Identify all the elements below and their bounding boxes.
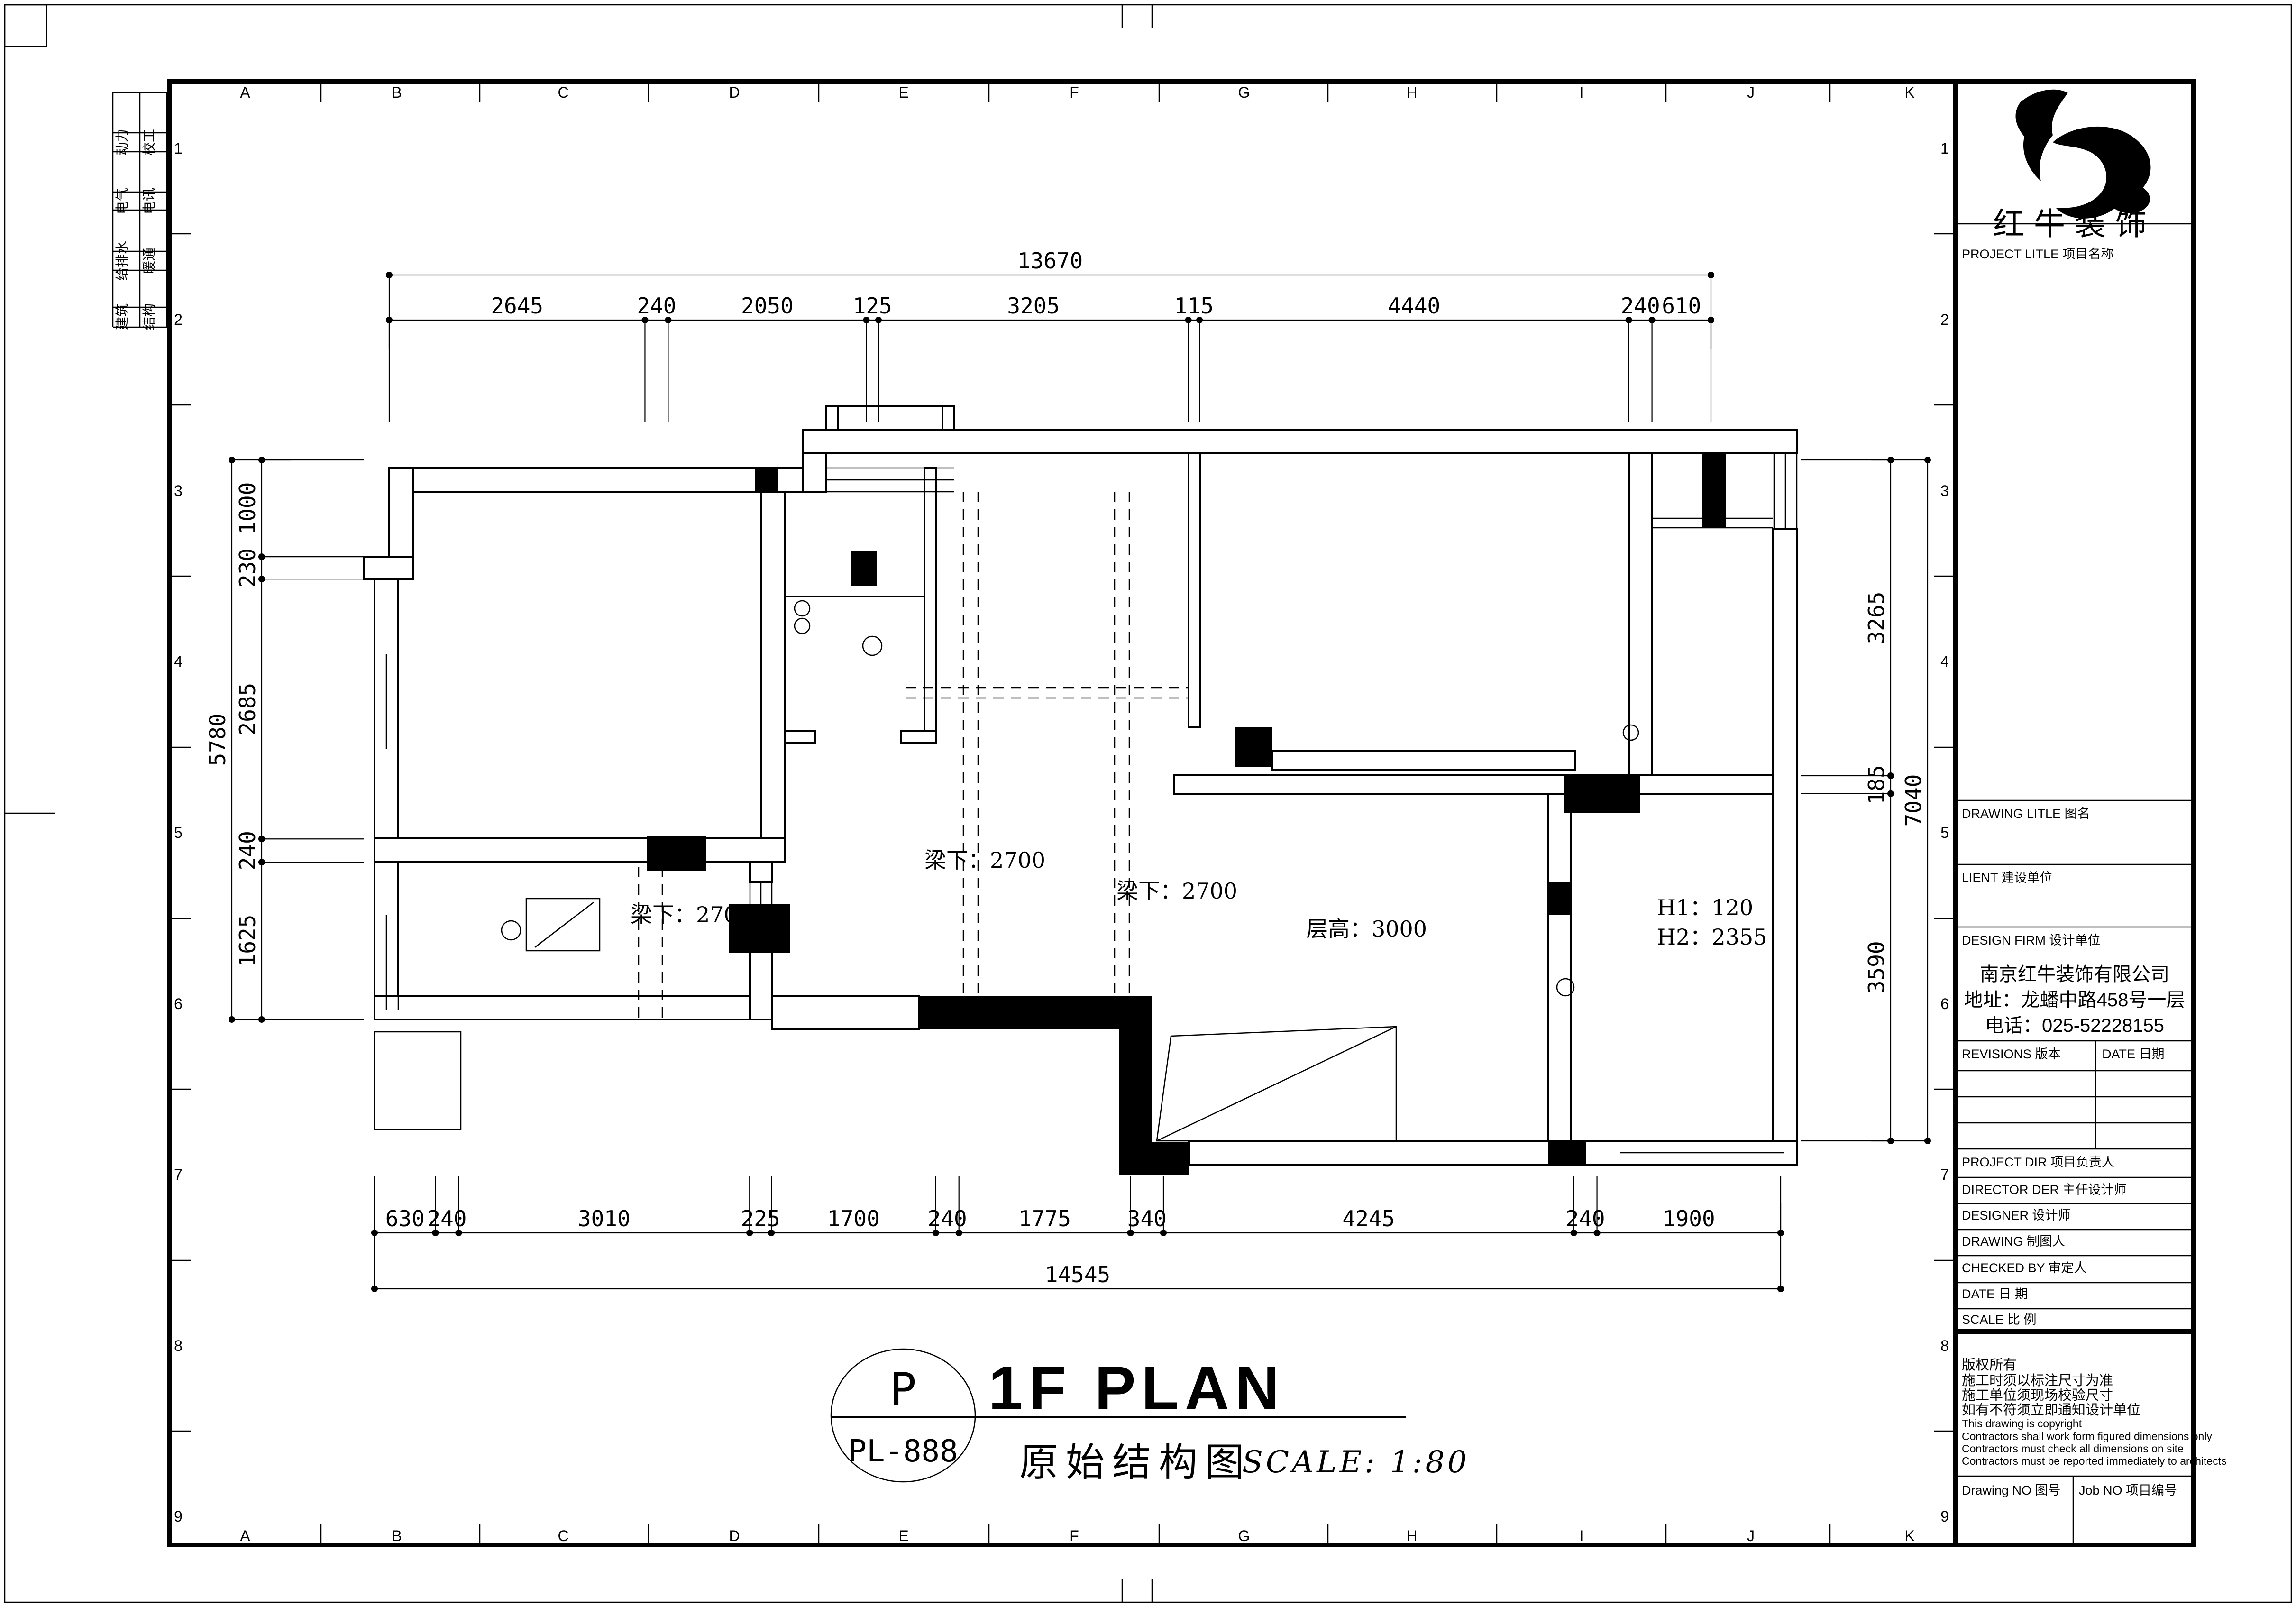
grid-number-right: 6 <box>1940 995 1949 1012</box>
drawing-sheet: AABBCCDDEEFFGGHHIIJJKK112233445566778899… <box>0 0 2296 1607</box>
discipline-label: 结构 <box>142 303 156 330</box>
dim-text: 225 <box>741 1206 780 1231</box>
copyright-line-3: 如有不符须立即通知设计单位 <box>1962 1402 2140 1418</box>
grid-number-left: 7 <box>174 1166 183 1183</box>
checked-by-label: CHECKED BY 审定人 <box>1962 1261 2087 1275</box>
dim-text: 13670 <box>1017 248 1083 274</box>
company-phone: 电话：025-52228155 <box>1985 1015 2164 1036</box>
copyright-line-0: 版权所有 <box>1962 1357 2017 1373</box>
dim-text: 125 <box>853 293 892 319</box>
dim-text: 1900 <box>1663 1206 1715 1231</box>
window-right-bay <box>1774 453 1797 528</box>
dim-text: 3205 <box>1007 293 1060 319</box>
dim-text: 4245 <box>1342 1206 1395 1231</box>
stair-flue-shape <box>1157 1027 1396 1141</box>
grid-letter-bottom: B <box>392 1527 402 1544</box>
dim-text: 5780 <box>205 714 230 766</box>
drawing-by-label: DRAWING 制图人 <box>1962 1234 2065 1249</box>
dim-text: 4440 <box>1388 293 1440 319</box>
grid-letter-bottom: K <box>1904 1527 1914 1544</box>
floor-height-note: 层高：3000 <box>1306 916 1427 942</box>
brand-name: 红牛装饰 <box>1993 206 2156 242</box>
h1-note: H1：120 <box>1657 895 1753 920</box>
dim-text: 2645 <box>491 293 543 319</box>
dim-text: 1000 <box>235 482 260 535</box>
discipline-label: 校工 <box>142 129 156 156</box>
revisions-label: REVISIONS 版本 <box>1962 1047 2061 1061</box>
entry-porch <box>375 1032 461 1129</box>
grid-number-left: 3 <box>174 482 183 499</box>
h2-note: H2：2355 <box>1657 924 1767 950</box>
grid-letter-bottom: A <box>240 1527 250 1544</box>
beam-note-3: 梁下：2700 <box>631 902 751 927</box>
dimension-lines: 2645240205012532051154440240610136706302… <box>205 248 1931 1292</box>
grid-letter-bottom: H <box>1406 1527 1417 1544</box>
dim-text: 240 <box>1566 1206 1605 1231</box>
discipline-label: 电讯 <box>142 188 156 214</box>
drawing-code: PL-888 <box>848 1434 958 1469</box>
dim-text: 2685 <box>235 683 260 735</box>
dim-text: 1775 <box>1018 1206 1071 1231</box>
copyright-line-5: Contractors shall work form figured dime… <box>1962 1430 2212 1442</box>
floor-plan: 梁下：2700 梁下：2700 梁下：2700 层高：3000 H1：120 H… <box>364 406 1797 1175</box>
grid-number-right: 8 <box>1940 1337 1949 1354</box>
grid-letter-top: H <box>1406 84 1417 101</box>
grid-letter-bottom: J <box>1747 1527 1755 1544</box>
scale-row-label: SCALE 比 例 <box>1962 1313 2037 1327</box>
client-label: LIENT 建设单位 <box>1962 871 2053 885</box>
grid-letter-top: K <box>1904 84 1914 101</box>
grid-letter-bottom: C <box>558 1527 568 1544</box>
plan-title-en: 1F PLAN <box>988 1353 1285 1423</box>
plumbing-symbols <box>795 601 1638 996</box>
date-row-label: DATE 日 期 <box>1962 1287 2028 1301</box>
drawing-title-label: DRAWING LITLE 图名 <box>1962 807 2090 821</box>
dim-text: 240 <box>928 1206 967 1231</box>
plan-notes: 梁下：2700 梁下：2700 梁下：2700 层高：3000 H1：120 H… <box>631 847 1767 950</box>
copyright-line-2: 施工单位须现场校验尺寸 <box>1962 1387 2113 1403</box>
dim-text: 240 <box>427 1206 467 1231</box>
design-firm-label: DESIGN FIRM 设计单位 <box>1962 933 2101 947</box>
company-name: 南京红牛装饰有限公司 <box>1980 964 2169 985</box>
copyright-line-1: 施工时须以标注尺寸为准 <box>1962 1372 2113 1388</box>
dim-text: 3010 <box>578 1206 631 1231</box>
detail-marker-letter: P <box>890 1364 917 1415</box>
title-block: 红牛装饰 PROJECT LITLE 项目名称 DRAWING LITLE 图名… <box>1955 90 2227 1545</box>
dim-text: 115 <box>1174 293 1214 319</box>
plan-title-cn: 原始结构图 <box>1019 1440 1252 1485</box>
grid-number-right: 2 <box>1940 311 1949 328</box>
grid-letter-bottom: I <box>1580 1527 1584 1544</box>
dim-text: 240 <box>637 293 676 319</box>
discipline-label: 暖通 <box>142 248 156 274</box>
shear-wall-z <box>919 996 1152 1029</box>
grid-number-left: 6 <box>174 995 183 1012</box>
beam-note-2: 梁下：2700 <box>1116 878 1237 904</box>
grid-number-right: 1 <box>1940 140 1949 157</box>
grid-letter-top: B <box>392 84 402 101</box>
dim-text: 630 <box>385 1206 425 1231</box>
copyright-line-4: This drawing is copyright <box>1962 1417 2082 1430</box>
date-col-label: DATE 日期 <box>2102 1047 2165 1061</box>
grid-letter-top: C <box>558 84 568 101</box>
dim-right-segments: 32651853590 <box>1801 457 1894 1144</box>
grid-number-right: 9 <box>1940 1508 1949 1525</box>
company-address: 地址：龙蟠中路458号一层 <box>1964 990 2186 1010</box>
director-der-label: DIRECTOR DER 主任设计师 <box>1962 1183 2127 1197</box>
discipline-label: 电气 <box>115 188 129 214</box>
furniture-desk <box>502 899 600 951</box>
dim-text: 230 <box>235 548 260 588</box>
project-dir-label: PROJECT DIR 项目负责人 <box>1962 1155 2114 1169</box>
dim-left-segments: 100023026852401625 <box>235 457 364 1023</box>
discipline-label: 建筑 <box>115 303 129 330</box>
grid-letter-top: G <box>1238 84 1250 101</box>
job-no-label: Job NO 项目编号 <box>2079 1483 2177 1497</box>
grid-number-right: 7 <box>1940 1166 1949 1183</box>
copyright-line-7: Contractors must be reported immediately… <box>1962 1455 2227 1467</box>
dim-text: 240 <box>235 831 260 870</box>
dim-bottom-segments: 63024030102251700240177534042452401900 <box>371 1176 1784 1236</box>
drawing-title: P PL-888 1F PLAN 原始结构图 SCALE: 1:80 <box>831 1349 1470 1485</box>
grid-number-right: 3 <box>1940 482 1949 499</box>
dim-text: 7040 <box>1901 774 1926 827</box>
discipline-strip: 动力校工电气电讯给排水暖通建筑结构 <box>113 92 167 330</box>
grid-letter-bottom: D <box>729 1527 740 1544</box>
designer-label: DESIGNER 设计师 <box>1962 1208 2071 1222</box>
grid-letter-bottom: F <box>1070 1527 1079 1544</box>
dim-text: 1625 <box>235 915 260 967</box>
beam-dashed-lines <box>639 492 1189 1019</box>
grid-letter-top: F <box>1070 84 1079 101</box>
grid-number-left: 2 <box>174 311 183 328</box>
copyright-line-6: Contractors must check all dimensions on… <box>1962 1442 2184 1455</box>
grid-number-left: 5 <box>174 824 183 841</box>
dim-text: 1700 <box>827 1206 880 1231</box>
grid-number-right: 4 <box>1940 653 1949 670</box>
dim-text: 340 <box>1127 1206 1167 1231</box>
dim-text: 185 <box>1864 765 1889 804</box>
dim-text: 3265 <box>1864 592 1889 644</box>
sheet-corner-box <box>5 5 46 46</box>
dim-text: 14545 <box>1045 1262 1110 1287</box>
grid-letter-top: A <box>240 84 250 101</box>
grid-number-left: 8 <box>174 1337 183 1354</box>
project-title-label: PROJECT LITLE 项目名称 <box>1962 247 2114 261</box>
beam-note-1: 梁下：2700 <box>924 847 1045 873</box>
drawing-no-label: Drawing NO 图号 <box>1962 1483 2061 1497</box>
dim-text: 240 <box>1621 293 1660 319</box>
dim-text: 3590 <box>1864 941 1889 993</box>
grid-number-left: 9 <box>174 1508 183 1525</box>
grid-letter-bottom: G <box>1238 1527 1250 1544</box>
plan-scale: SCALE: 1:80 <box>1242 1445 1470 1480</box>
grid-number-right: 5 <box>1940 824 1949 841</box>
discipline-label: 给排水 <box>115 241 129 281</box>
dim-text: 2050 <box>741 293 794 319</box>
grid-number-left: 1 <box>174 140 183 157</box>
grid-letter-top: D <box>729 84 740 101</box>
grid-letter-top: E <box>898 84 908 101</box>
dim-text: 610 <box>1662 293 1701 319</box>
grid-letter-top: I <box>1580 84 1584 101</box>
hongniu-bull-logo-icon <box>2016 90 2151 219</box>
grid-number-left: 4 <box>174 653 183 670</box>
discipline-label: 动力 <box>115 129 129 156</box>
grid-letter-bottom: E <box>898 1527 908 1544</box>
grid-letter-top: J <box>1747 84 1755 101</box>
dim-top-segments: 2645240205012532051154440240610 <box>386 293 1714 422</box>
